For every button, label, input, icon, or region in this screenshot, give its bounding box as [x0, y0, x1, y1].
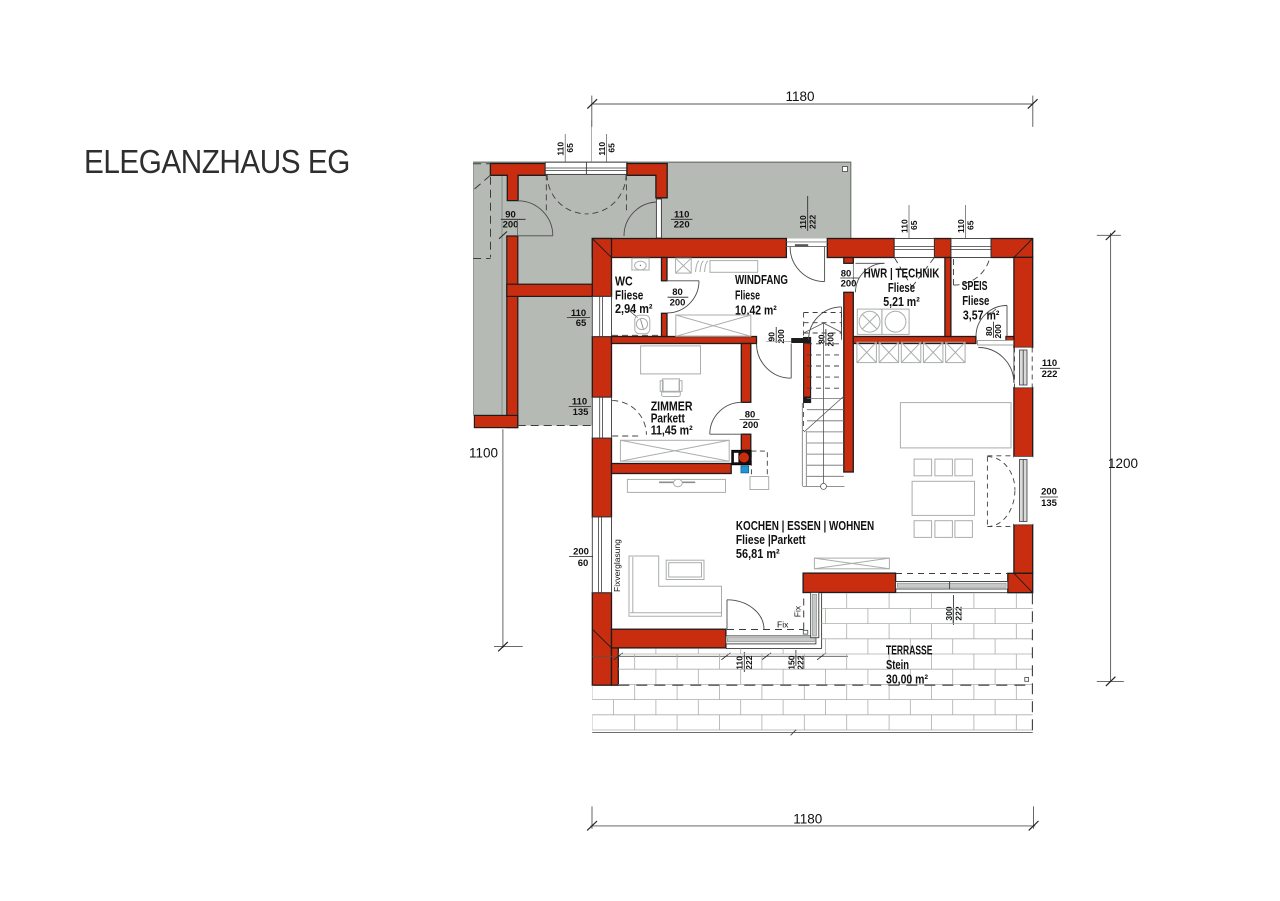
svg-text:5,21 m²: 5,21 m² — [883, 295, 920, 309]
svg-text:1200: 1200 — [1108, 456, 1138, 471]
svg-text:WINDFANG: WINDFANG — [735, 273, 788, 287]
svg-text:Fixverglasung: Fixverglasung — [612, 539, 622, 592]
svg-text:65: 65 — [606, 143, 616, 153]
svg-text:HWR | TECHNIK: HWR | TECHNIK — [864, 267, 940, 281]
svg-text:222: 222 — [1042, 369, 1058, 380]
svg-text:SPEIS: SPEIS — [962, 279, 988, 293]
svg-text:200: 200 — [503, 220, 519, 231]
svg-text:56,81 m²: 56,81 m² — [736, 547, 780, 561]
svg-text:200: 200 — [841, 278, 857, 289]
svg-text:200: 200 — [743, 420, 759, 431]
svg-text:Fliese: Fliese — [962, 294, 989, 308]
svg-text:Fliese: Fliese — [735, 289, 760, 303]
svg-text:1100: 1100 — [469, 446, 498, 461]
svg-text:TERRASSE: TERRASSE — [886, 644, 932, 658]
svg-text:200: 200 — [573, 547, 589, 558]
svg-text:200: 200 — [1041, 487, 1057, 498]
svg-text:60: 60 — [578, 558, 589, 569]
svg-text:135: 135 — [1041, 498, 1058, 509]
svg-text:200: 200 — [670, 298, 686, 309]
svg-text:Stein: Stein — [886, 658, 909, 672]
svg-text:KOCHEN | ESSEN | WOHNEN: KOCHEN | ESSEN | WOHNEN — [736, 519, 874, 533]
svg-text:WC: WC — [615, 275, 633, 289]
svg-text:1180: 1180 — [793, 812, 822, 827]
svg-text:135: 135 — [573, 407, 590, 418]
svg-text:200: 200 — [826, 332, 836, 346]
svg-text:65: 65 — [565, 143, 575, 153]
svg-text:Fliese: Fliese — [615, 289, 643, 303]
svg-text:200: 200 — [993, 324, 1003, 338]
svg-text:1180: 1180 — [785, 89, 814, 104]
svg-text:Fix: Fix — [777, 620, 789, 630]
svg-text:Fix: Fix — [793, 605, 803, 617]
svg-text:110: 110 — [572, 397, 587, 408]
svg-text:Fliese: Fliese — [888, 281, 915, 295]
svg-text:65: 65 — [965, 220, 975, 230]
svg-text:222: 222 — [808, 215, 818, 229]
svg-text:65: 65 — [909, 220, 919, 230]
svg-text:ELEGANZHAUS EG: ELEGANZHAUS EG — [84, 144, 350, 181]
svg-text:222: 222 — [744, 655, 754, 669]
svg-text:65: 65 — [576, 318, 587, 329]
svg-text:110: 110 — [1042, 358, 1057, 369]
svg-text:30,00 m²: 30,00 m² — [886, 673, 928, 687]
svg-text:11,45 m²: 11,45 m² — [651, 424, 693, 438]
svg-text:Fliese |Parkett: Fliese |Parkett — [736, 533, 806, 547]
svg-text:220: 220 — [674, 220, 690, 231]
